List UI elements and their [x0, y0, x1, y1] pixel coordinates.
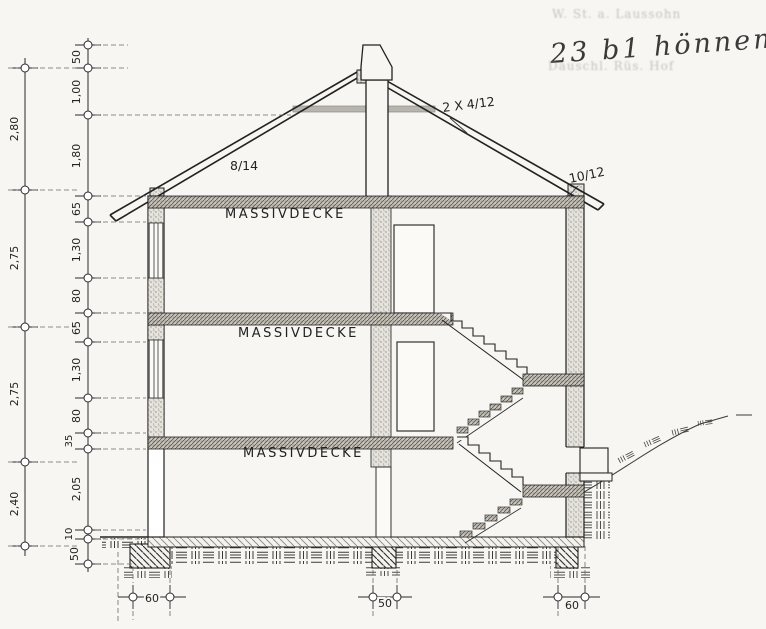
door-lower: [397, 342, 434, 431]
dim-inner-5: 80: [70, 289, 83, 303]
dim-inner-7: 1,30: [70, 358, 83, 383]
left-wall: [148, 188, 164, 537]
dim-outer-0: 2,80: [8, 117, 21, 142]
stamp-bottom-text: Dauschl. Rüs. Hof: [548, 59, 675, 73]
attic-slab: [148, 196, 584, 208]
footing-left: [130, 544, 170, 568]
stair-landing-2: [523, 485, 584, 497]
building-section-drawing: MASSIVDECKE MASSIVDECKE MASSIVDECKE 8/14…: [0, 0, 766, 629]
stair-landing-1: [523, 374, 584, 386]
dim-bottom-left: 60: [145, 592, 159, 605]
collar-beam: [293, 106, 435, 112]
dim-inner-8: 80: [70, 409, 83, 423]
window-upper-left: [149, 223, 163, 278]
dim-inner-11: 10: [64, 528, 75, 541]
dim-outer-3: 2,40: [8, 492, 21, 517]
window-lower-left: [149, 340, 163, 398]
dim-outer-1: 2,75: [8, 246, 21, 271]
footing-right: [556, 544, 578, 568]
dim-inner-2: 1,80: [70, 144, 83, 169]
slab-label-second: MASSIVDECKE: [238, 326, 359, 341]
dim-inner-4: 1,30: [70, 238, 83, 263]
slab-label-first: MASSIVDECKE: [243, 446, 364, 461]
dim-outer-2: 2,75: [8, 382, 21, 407]
dim-inner-3: 65: [70, 202, 83, 216]
dim-inner-9: 35: [64, 435, 75, 448]
ground-slab: [148, 537, 584, 547]
second-floor-slab: [148, 313, 453, 325]
entrance-step-block: [580, 448, 612, 481]
dim-inner-6: 65: [70, 321, 83, 335]
chimney: [361, 45, 392, 198]
dim-bottom-middle: 50: [378, 597, 392, 610]
dim-bottom-right: 60: [565, 599, 579, 612]
footing-middle: [372, 544, 396, 568]
dim-inner-10: 2,05: [70, 477, 83, 502]
drawing-page: MASSIVDECKE MASSIVDECKE MASSIVDECKE 8/14…: [0, 0, 766, 629]
dim-inner-0: 50: [70, 50, 83, 64]
slab-label-attic: MASSIVDECKE: [225, 207, 346, 222]
stamp-top-text: W. St. a. Laussohn: [552, 7, 681, 21]
dim-inner-12: 50: [68, 547, 81, 561]
dim-inner-1: 1,00: [70, 80, 83, 105]
rafter-dimension-label: 8/14: [230, 158, 258, 173]
door-upper: [394, 225, 434, 313]
